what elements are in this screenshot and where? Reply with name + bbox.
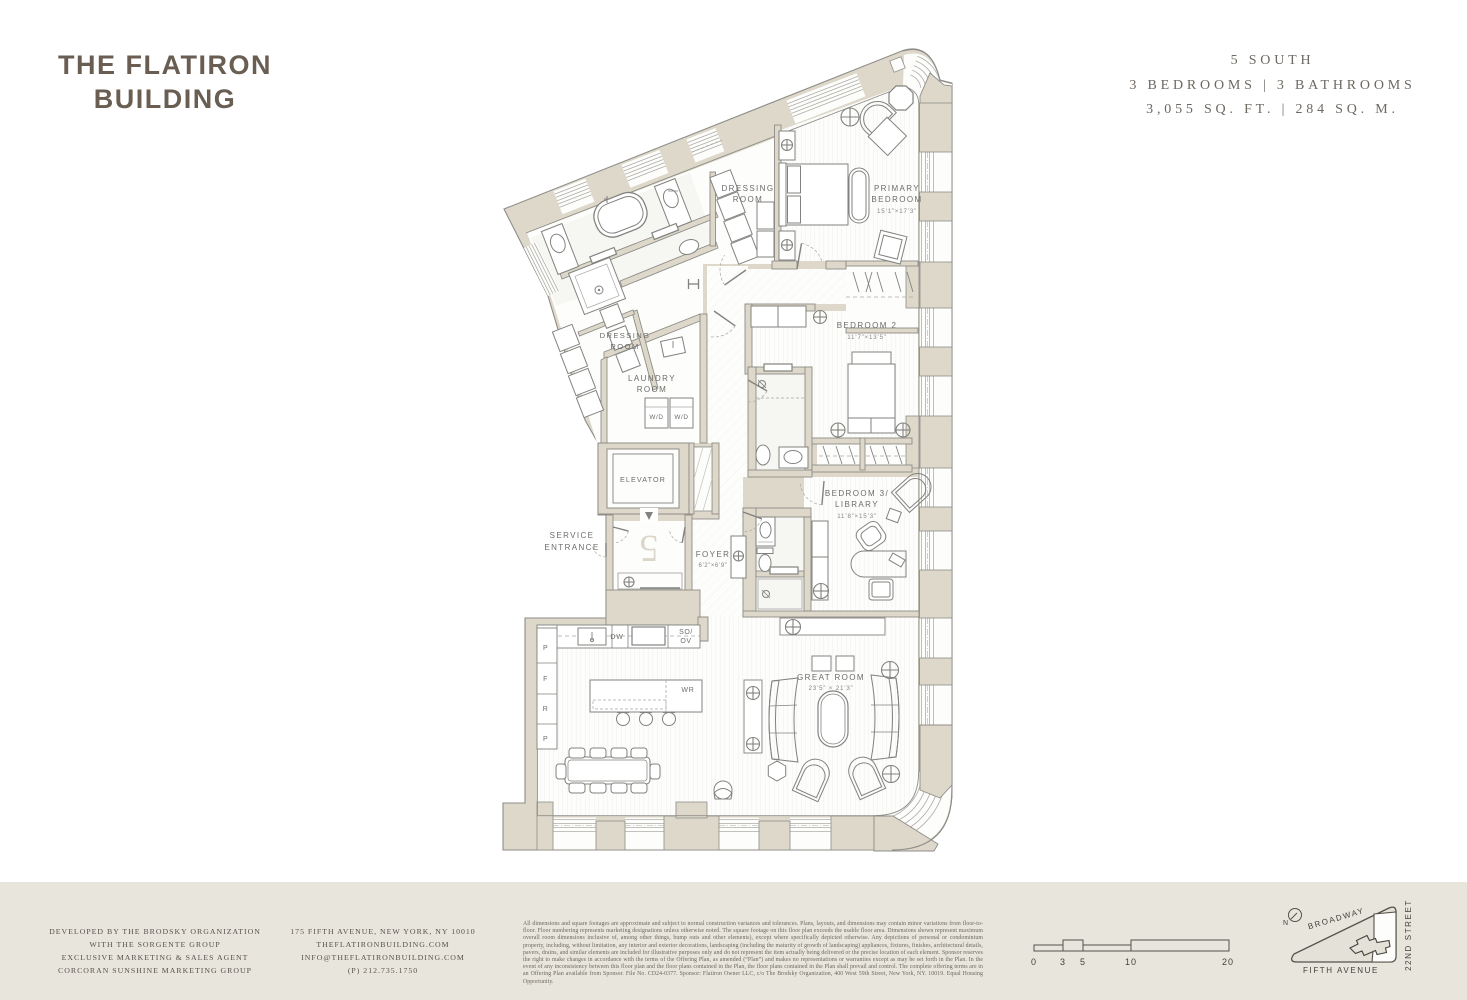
- svg-text:11’7”×13’5”: 11’7”×13’5”: [847, 334, 886, 341]
- svg-text:5: 5: [1080, 957, 1086, 967]
- svg-text:GREAT ROOM: GREAT ROOM: [797, 673, 865, 682]
- svg-text:11’8”×15’3”: 11’8”×15’3”: [837, 513, 876, 520]
- svg-text:6’2”×6’9”: 6’2”×6’9”: [699, 563, 728, 569]
- svg-text:SERVICE: SERVICE: [550, 531, 595, 540]
- svg-text:R: R: [543, 706, 549, 713]
- svg-text:ROOM: ROOM: [733, 195, 764, 204]
- svg-text:WR: WR: [681, 687, 694, 694]
- svg-text:ROOM: ROOM: [637, 385, 668, 394]
- svg-text:W/D: W/D: [649, 414, 663, 421]
- svg-text:DW: DW: [610, 634, 623, 641]
- svg-text:20: 20: [1222, 957, 1234, 967]
- svg-text:W/D: W/D: [674, 414, 688, 421]
- svg-text:0: 0: [1031, 957, 1037, 967]
- svg-text:P: P: [543, 736, 549, 743]
- svg-text:LAUNDRY: LAUNDRY: [628, 374, 676, 383]
- svg-text:N: N: [1283, 920, 1288, 927]
- svg-text:F: F: [543, 676, 549, 683]
- svg-text:P: P: [543, 645, 549, 652]
- svg-text:ELEVATOR: ELEVATOR: [620, 475, 666, 484]
- svg-text:ENTRANCE: ENTRANCE: [544, 543, 599, 552]
- svg-text:15’1”×17’3”: 15’1”×17’3”: [877, 208, 917, 215]
- svg-text:PRIMARY: PRIMARY: [874, 184, 920, 193]
- svg-text:BEDROOM: BEDROOM: [871, 195, 922, 204]
- svg-text:22ND STREET: 22ND STREET: [1404, 899, 1413, 971]
- svg-text:10: 10: [1125, 957, 1137, 967]
- svg-text:3: 3: [1060, 957, 1066, 967]
- svg-text:DRESSING: DRESSING: [722, 184, 775, 193]
- svg-text:23’5” × 21’3”: 23’5” × 21’3”: [809, 685, 854, 692]
- svg-text:BEDROOM 3/: BEDROOM 3/: [825, 489, 889, 498]
- svg-text:FIFTH AVENUE: FIFTH AVENUE: [1303, 966, 1379, 975]
- svg-text:5: 5: [640, 527, 659, 569]
- svg-text:SO/: SO/: [679, 629, 693, 636]
- svg-text:DRESSING: DRESSING: [600, 331, 651, 340]
- svg-text:FOYER: FOYER: [696, 550, 731, 559]
- svg-text:BEDROOM 2: BEDROOM 2: [837, 321, 898, 330]
- svg-text:OV: OV: [680, 638, 691, 645]
- svg-text:LIBRARY: LIBRARY: [835, 500, 879, 509]
- svg-text:ROOM: ROOM: [610, 342, 639, 351]
